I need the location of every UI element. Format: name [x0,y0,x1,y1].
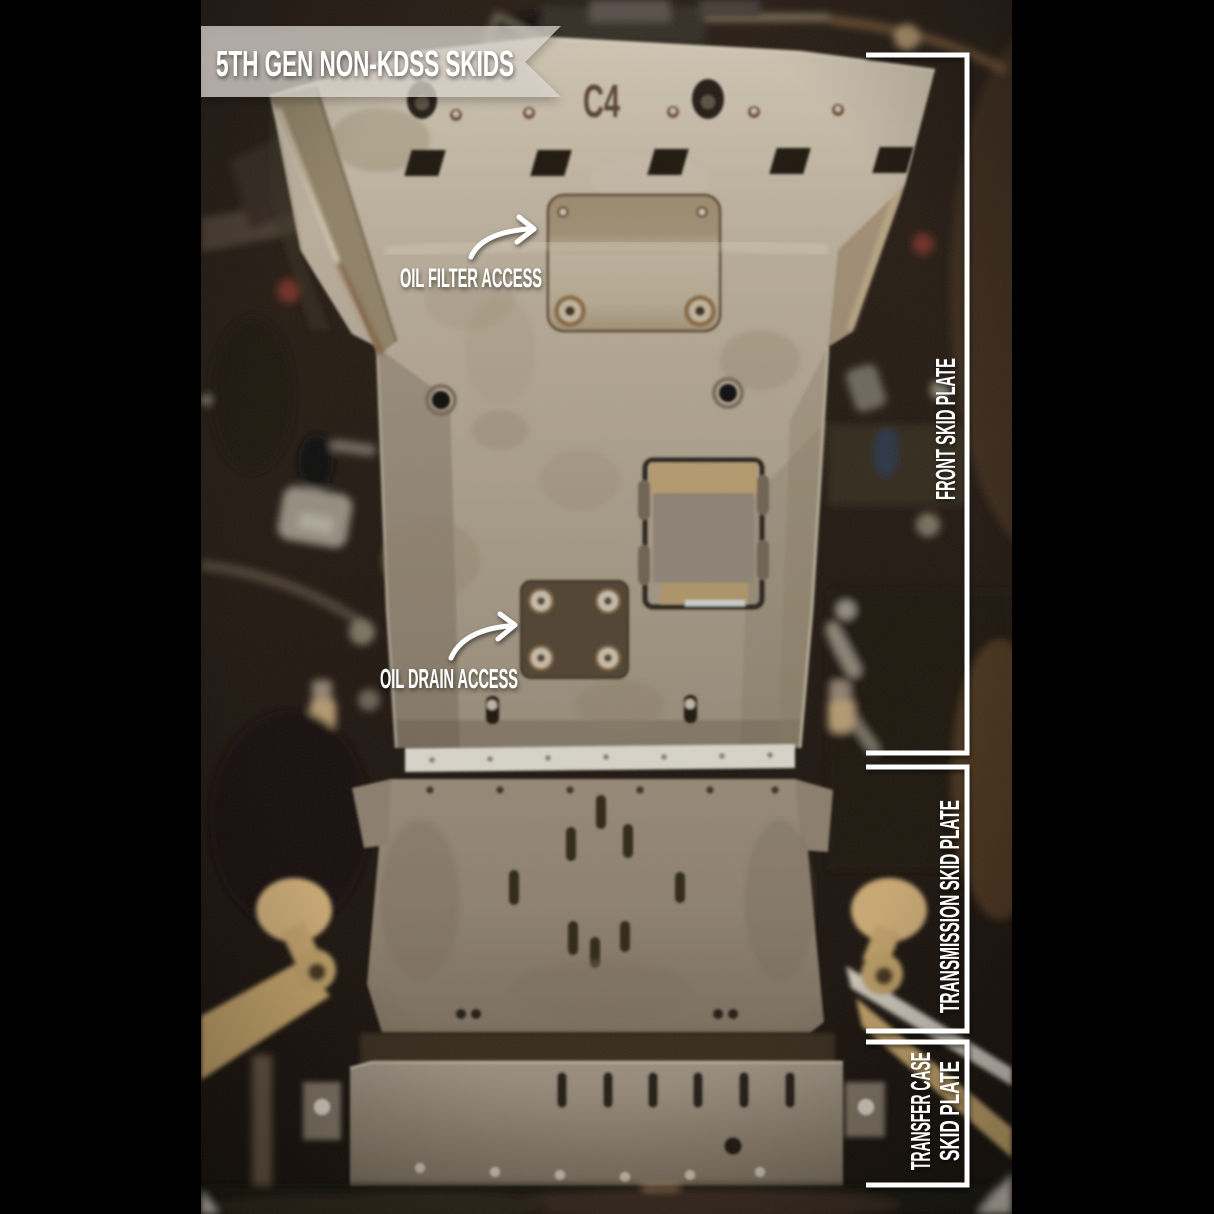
svg-text:TRANSFER CASE: TRANSFER CASE [905,1052,936,1170]
svg-text:OIL FILTER ACCESS: OIL FILTER ACCESS [400,263,542,293]
svg-text:5TH GEN NON-KDSS SKIDS: 5TH GEN NON-KDSS SKIDS [216,43,514,84]
svg-text:OIL DRAIN ACCESS: OIL DRAIN ACCESS [380,663,518,694]
svg-text:TRANSMISSION SKID PLATE: TRANSMISSION SKID PLATE [934,800,965,1013]
svg-text:SKID PLATE: SKID PLATE [934,1061,965,1161]
svg-text:FRONT SKID PLATE: FRONT SKID PLATE [930,358,961,500]
